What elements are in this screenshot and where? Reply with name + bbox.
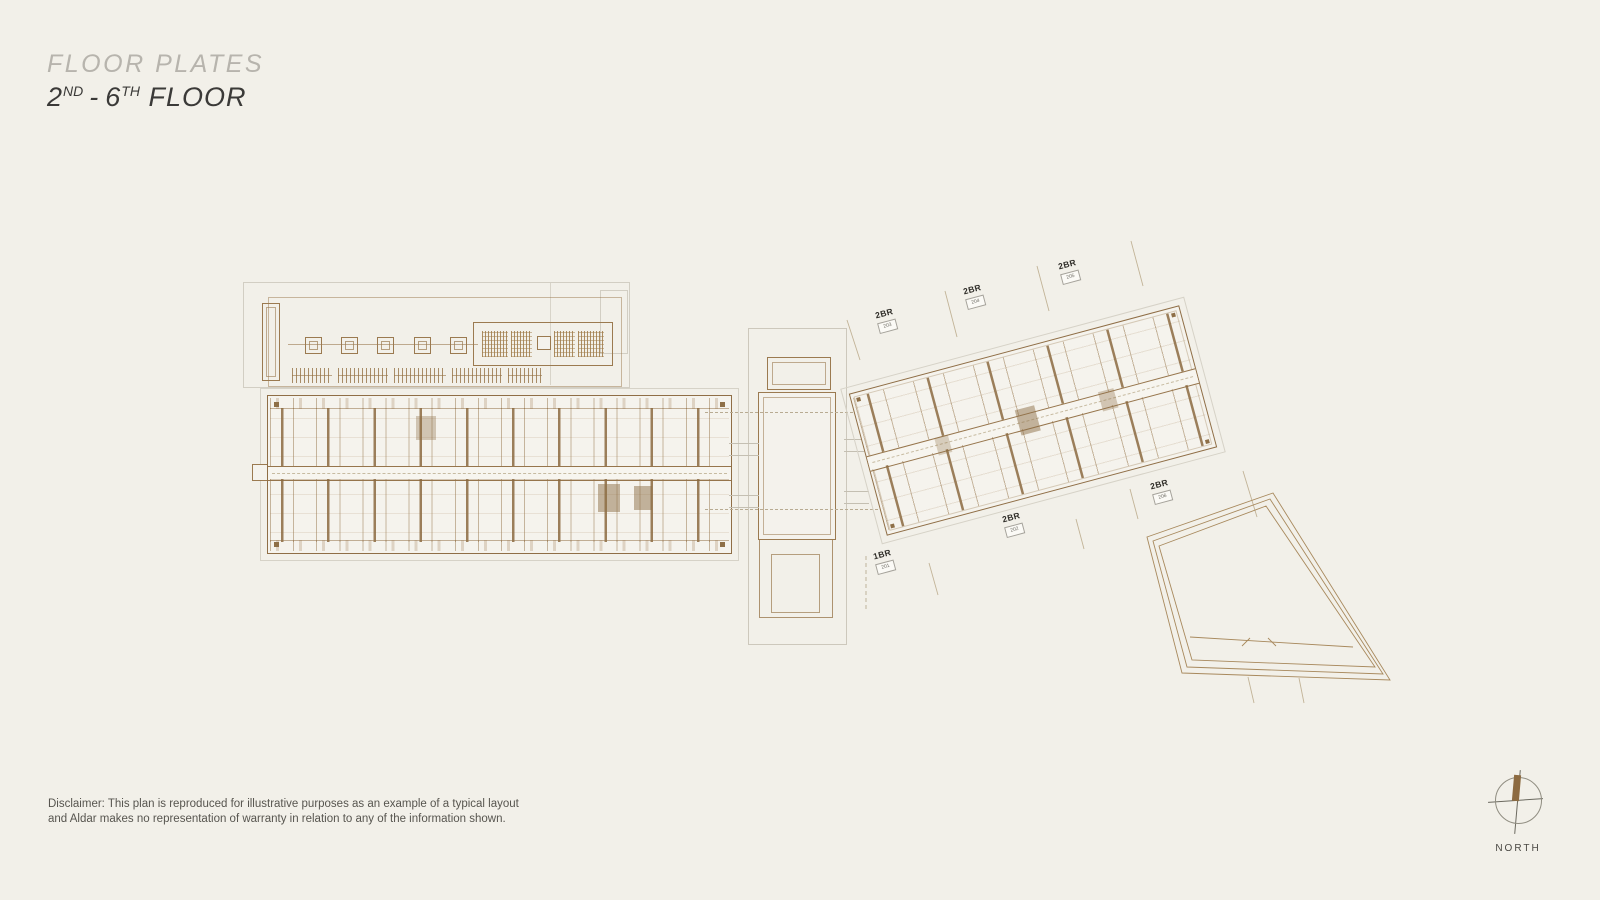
unit-label: 1BR 201: [872, 547, 897, 575]
link-lower-room: [759, 539, 833, 618]
corner-column: [720, 542, 725, 547]
grille-hatch: [578, 331, 604, 357]
floor-plate-page: FLOOR PLATES 2ND-6TH FLOOR: [0, 0, 1600, 900]
grille-hatch: [554, 331, 575, 357]
disclaimer: Disclaimer: This plan is reproduced for …: [48, 797, 519, 827]
terrace-deck-outline: [1147, 493, 1390, 680]
skylight-inner: [381, 341, 390, 350]
west-wing-corridor-stub: [252, 464, 268, 481]
corner-column: [274, 542, 279, 547]
skylight-inner: [418, 341, 427, 350]
unit-label: 2BR 204: [962, 282, 987, 310]
grille-square: [537, 336, 551, 350]
skylight: [377, 337, 394, 354]
skylight-inner: [454, 341, 463, 350]
service-core: [634, 486, 652, 510]
disclaimer-line-1: Disclaimer: This plan is reproduced for …: [48, 797, 519, 812]
link-core-inner: [763, 397, 831, 535]
unit-label: 2BR 205: [1057, 257, 1082, 285]
unit-number-tag: 205: [1060, 270, 1081, 286]
unit-number-tag: 203: [877, 319, 898, 335]
unit-label: 2BR 206: [1149, 477, 1174, 505]
guestroom-band-north: [270, 408, 729, 467]
skylight: [414, 337, 431, 354]
louvre-row: [452, 368, 502, 383]
skylight: [341, 337, 358, 354]
unit-label: 2BR 203: [874, 306, 899, 334]
floor-sup-end: TH: [121, 83, 140, 99]
skylight: [450, 337, 467, 354]
west-wing-floor-plan: [267, 395, 732, 554]
skylight-inner: [345, 341, 354, 350]
unit-number-tag: 201: [875, 560, 896, 576]
page-title: FLOOR PLATES: [47, 50, 264, 79]
floor-number-start: 2: [47, 82, 63, 112]
corner-column: [274, 402, 279, 407]
unit-number-tag: 202: [1004, 523, 1025, 539]
skylight-inner: [309, 341, 318, 350]
service-core: [598, 484, 620, 512]
bridge-connector: [729, 495, 759, 508]
floor-separator: -: [83, 82, 105, 112]
guestroom-band-south: [270, 479, 729, 542]
unit-number-tag: 206: [1152, 490, 1173, 506]
unit-label: 2BR 202: [1001, 510, 1026, 538]
unit-number-tag: 204: [965, 295, 986, 311]
service-core: [416, 416, 436, 440]
page-subtitle: 2ND-6TH FLOOR: [47, 82, 247, 113]
skylight: [305, 337, 322, 354]
balcony-strip-south: [270, 540, 729, 551]
louvre-row: [338, 368, 388, 383]
louvre-row: [508, 368, 542, 383]
grille-hatch: [482, 331, 508, 357]
floor-number-end: 6: [105, 82, 121, 112]
link-lower-room-inner: [771, 554, 820, 613]
stair-core-inner: [266, 307, 276, 377]
louvre-row: [394, 368, 446, 383]
disclaimer-line-2: and Aldar makes no representation of war…: [48, 812, 519, 827]
mechanical-panel: [473, 322, 613, 366]
stair-core: [262, 303, 280, 381]
louvre-row: [292, 368, 332, 383]
link-core: [758, 392, 836, 540]
floor-sup-start: ND: [63, 83, 83, 99]
bridge-connector: [729, 443, 759, 456]
bridge-connector: [844, 491, 869, 504]
link-upper-room: [767, 357, 831, 390]
corridor-centerline: [705, 509, 878, 510]
floor-word: FLOOR: [148, 82, 246, 112]
north-label: NORTH: [1495, 843, 1540, 854]
grille-hatch: [511, 331, 532, 357]
corner-column: [720, 402, 725, 407]
link-upper-room-inner: [772, 362, 826, 385]
